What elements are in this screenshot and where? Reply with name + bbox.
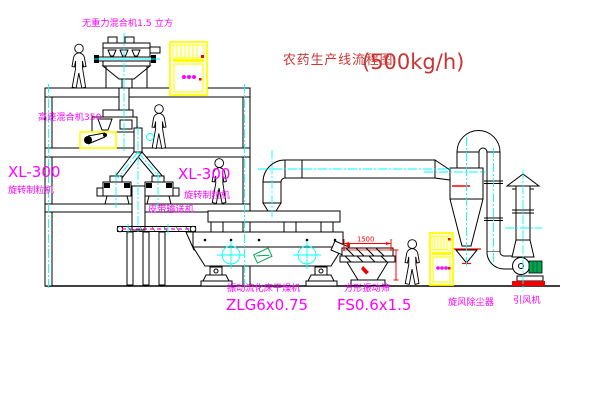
cad-drawing-canvas: 1500 <box>0 0 600 403</box>
induced-draft-fan[interactable] <box>512 258 545 287</box>
granulator-left[interactable] <box>97 176 131 204</box>
label-cyclone: 旋风除尘器 <box>448 296 494 308</box>
label-granulator-model-center: XL-300 <box>178 165 230 183</box>
gravity-free-mixer[interactable] <box>94 37 160 110</box>
fluid-bed-dryer[interactable] <box>193 211 343 286</box>
granulator-right[interactable] <box>145 176 179 204</box>
label-screen-model: FS0.6x1.5 <box>337 296 411 314</box>
label-fan: 引风机 <box>513 294 541 306</box>
control-cabinet-right[interactable] <box>430 233 453 285</box>
label-dryer-model: ZLG6x0.75 <box>226 296 308 314</box>
drawing-title: 农药生产线流程图 (500kg/h) <box>283 50 464 74</box>
title-capacity: (500kg/h) <box>362 50 464 74</box>
control-cabinet-top[interactable] <box>170 42 207 95</box>
fan-base <box>512 281 545 286</box>
fan-motor <box>529 261 542 273</box>
vibrating-screen[interactable] <box>331 241 395 286</box>
dryer-exhaust-duct <box>263 160 450 211</box>
label-granulator-name-center: 旋转制粒机 <box>184 189 230 201</box>
label-granulator-name-left: 旋转制粒机 <box>8 184 54 196</box>
label-gravity-mixer: 无重力混合机1.5 立方 <box>82 17 173 29</box>
label-screen-name: 方形振动筛 <box>344 282 390 294</box>
screen-width-dimension: 1500 <box>357 236 374 244</box>
label-dryer-name: 振动流化床干燥机 <box>227 282 301 294</box>
process-flow-diagram: 1500 <box>0 0 600 403</box>
person-figure-roof <box>72 44 86 88</box>
label-high-speed-mixer: 高速混合机350 <box>38 111 102 123</box>
cyclone-down-duct <box>484 152 513 269</box>
label-belt-conveyor: 皮带输送机 <box>148 203 194 215</box>
person-figure-floor2 <box>152 105 166 149</box>
label-granulator-model-left: XL-300 <box>8 163 60 181</box>
person-figure-ground <box>405 240 419 285</box>
